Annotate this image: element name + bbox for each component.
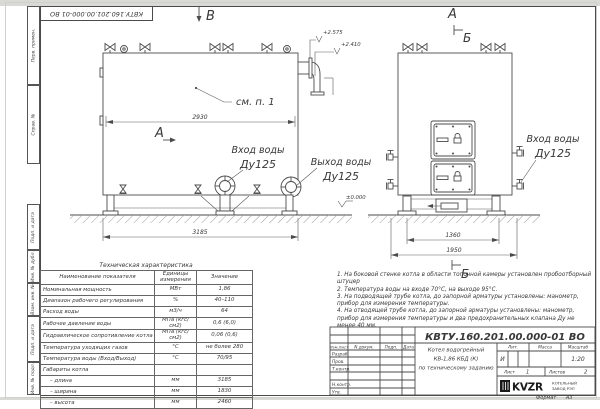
svg-text:Ду125: Ду125 — [534, 147, 571, 160]
product-name-line1: Котел водогрейный — [428, 348, 485, 354]
table-row: Рабочее давление водыМПа (кгс/см2)0,6 (6… — [41, 318, 253, 330]
title-block: КВТУ.160.201.00.000-01 ВО Изм.Лист N док… — [330, 325, 597, 400]
col-izm: Изм.Лист — [330, 345, 349, 350]
table-row: Расход водым3/ч64 — [41, 307, 253, 318]
safety-valve-icon — [417, 44, 427, 54]
safety-valve-icon — [105, 44, 115, 54]
note-item: 2. Температура воды на входе 70°С, на вы… — [337, 287, 593, 294]
stub-valve-icon — [387, 180, 399, 190]
svg-text:1950: 1950 — [446, 247, 461, 254]
door-handle — [437, 176, 448, 180]
col-dokum: N докум. — [354, 345, 373, 350]
role-prov: Пров. — [332, 359, 345, 365]
kvzr-logo-mark — [500, 380, 510, 392]
svg-text:+2.410: +2.410 — [341, 42, 361, 48]
shell-tab — [100, 116, 103, 125]
front-view-base — [398, 196, 505, 215]
side-view-supports — [103, 195, 297, 215]
upper-door — [431, 121, 475, 159]
svg-text:3185: 3185 — [192, 229, 207, 236]
lit-value: И — [500, 356, 505, 363]
svg-text:А: А — [154, 126, 164, 141]
svg-text:2930: 2930 — [192, 114, 207, 121]
stub-valve-icon — [512, 147, 524, 157]
safety-valve-icon — [223, 44, 233, 54]
front-view: А Б — [387, 7, 581, 281]
spec-table: Техническая характеристика Наименование … — [40, 262, 252, 409]
outlet-label: Выход воды Ду125 — [296, 157, 372, 186]
inlet-label-front: Вход воды Ду125 — [521, 134, 580, 182]
kvzr-logo-text: KVZR — [512, 382, 543, 394]
svg-text:±0.000: ±0.000 — [346, 195, 366, 201]
table-row: Номинальная мощностьМВт1,86 — [41, 285, 253, 296]
svg-text:Выход воды: Выход воды — [311, 157, 372, 168]
safety-valve-icon — [481, 44, 491, 54]
elevation-mark-2410: +2.410 — [315, 42, 361, 76]
table-row: Диапазон рабочего регулирования%40–110 — [41, 296, 253, 307]
table-row: Температура воды (Вход/Выход)°С70/95 — [41, 353, 253, 364]
margin-box-podp-data-2: Подп. и дата — [27, 316, 40, 362]
view-arrow-A-front: А — [447, 7, 457, 22]
col-podp: Подп. — [385, 345, 398, 350]
svg-text:Ду125: Ду125 — [239, 158, 276, 171]
ground-line — [70, 215, 540, 223]
svg-text:Ду125: Ду125 — [322, 170, 359, 183]
sheet-number: 1 — [526, 370, 529, 376]
boiler-drawing: +2.575 +2.410 В А см. п. 1 — [0, 0, 600, 290]
safety-valve-icon — [210, 44, 220, 54]
doc-number: КВТУ.160.201.00.000-01 ВО — [425, 332, 585, 343]
svg-text:1360: 1360 — [445, 232, 460, 239]
safety-valve-icon — [495, 44, 505, 54]
table-row: – длинамм3185 — [41, 375, 253, 386]
svg-text:+2.575: +2.575 — [323, 30, 343, 36]
svg-text:Вход воды: Вход воды — [526, 134, 580, 145]
scale-header: Масштаб — [568, 345, 589, 351]
table-row: – высотамм2460 — [41, 397, 253, 408]
mass-header: Масса — [538, 345, 552, 351]
svg-text:Б: Б — [463, 31, 471, 45]
role-utv: Утв. — [332, 389, 341, 395]
table-row: Гидравлическое сопротивление котлаМПа (к… — [41, 330, 253, 342]
spec-table-title: Техническая характеристика — [40, 262, 252, 269]
view-arrow-B: В — [197, 7, 216, 24]
stub-valve-icon — [387, 151, 399, 161]
note-item: 3. На подводящей трубе котла, до запорно… — [337, 294, 593, 309]
elevation-mark-zero: ±0.000 — [338, 195, 366, 207]
door-handle — [437, 138, 448, 142]
sheet-label: Лист — [503, 370, 515, 376]
boiler-shell-side — [103, 53, 298, 195]
safety-valve-icon — [262, 44, 272, 54]
sheets-label: Листов — [548, 370, 566, 376]
inlet-flange-icon — [215, 176, 235, 196]
safety-valve-icon — [403, 44, 413, 54]
col-data: Дата — [402, 345, 414, 350]
format-note: Формат А3 — [536, 395, 572, 401]
svg-text:В: В — [206, 9, 215, 24]
table-row: Габариты котла — [41, 364, 253, 375]
margin-box-inv-podl: Инв. № подл. — [27, 362, 40, 395]
role-razrab: Разраб. — [332, 351, 349, 357]
product-name-line3: по техническому заданию — [419, 366, 494, 372]
lower-door — [431, 161, 475, 195]
svg-text:Вход воды: Вход воды — [231, 145, 285, 156]
section-mark-B-top: Б — [454, 25, 471, 45]
role-tkontr: Т.контр. — [332, 366, 351, 372]
outlet-pipe-assembly — [298, 58, 333, 95]
shell-tab — [100, 68, 103, 77]
svg-text:см. п. 1: см. п. 1 — [236, 97, 275, 108]
company-name-line2: ЗАВОД РЭП — [552, 386, 575, 391]
side-view: +2.575 +2.410 В А см. п. 1 — [100, 7, 372, 241]
safety-valve-icon — [140, 44, 150, 54]
svg-text:А: А — [447, 7, 457, 22]
lit-header: Лит. — [507, 345, 518, 351]
product-name-line2: КВ-1,86 КБД (К) — [434, 357, 479, 363]
spec-table-grid: Наименование показателя Единицы измерени… — [40, 270, 253, 409]
role-nkontr: Н.контр. — [332, 382, 351, 388]
note-item: 1. На боковой стенке котла в области топ… — [337, 272, 593, 287]
table-row: – ширинамм1830 — [41, 386, 253, 397]
table-row: Температура уходящих газов°Сне более 280 — [41, 342, 253, 353]
scale-value: 1:20 — [571, 356, 585, 363]
company-name-line1: КОТЕЛЬНЫЙ — [552, 381, 577, 386]
outlet-flange-icon — [281, 177, 301, 197]
table-header-row: Наименование показателя Единицы измерени… — [41, 271, 253, 285]
